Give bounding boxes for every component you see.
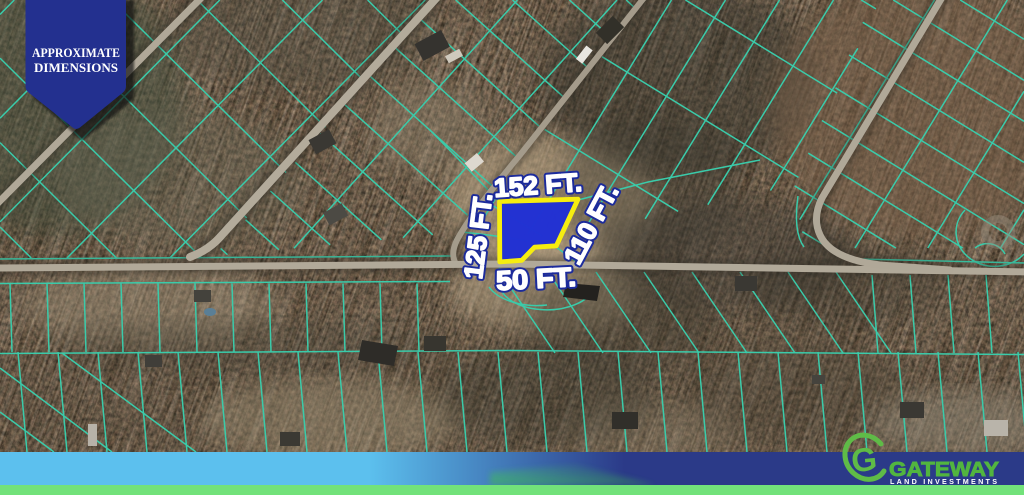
svg-text:50 FT.: 50 FT. <box>495 262 576 296</box>
svg-text:152 FT.: 152 FT. <box>493 167 583 203</box>
svg-text:LAND INVESTMENTS: LAND INVESTMENTS <box>890 477 997 486</box>
svg-text:APPROXIMATE: APPROXIMATE <box>32 45 120 60</box>
svg-text:G: G <box>849 440 878 479</box>
svg-text:DIMENSIONS: DIMENSIONS <box>34 60 118 75</box>
